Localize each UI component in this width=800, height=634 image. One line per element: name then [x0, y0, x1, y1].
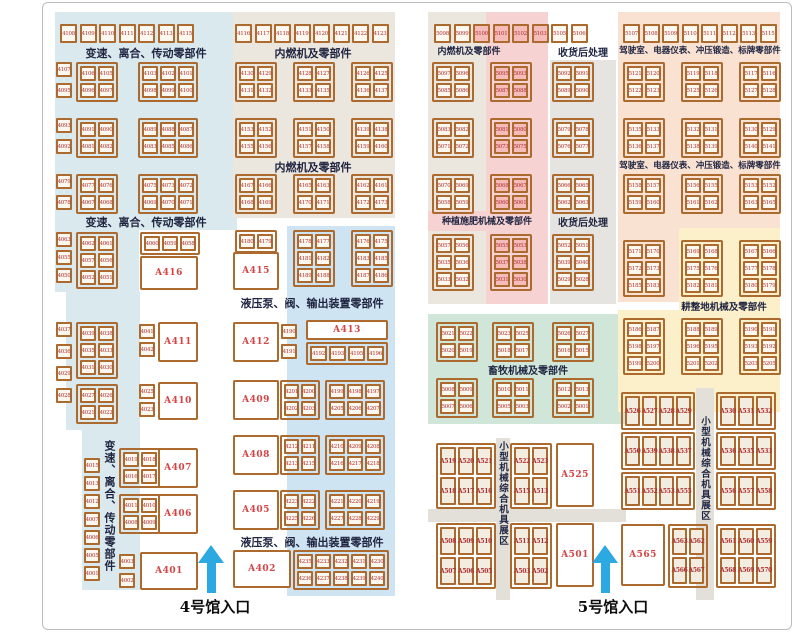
booth-number: 4221	[331, 499, 344, 505]
booth-number: 4131	[241, 88, 254, 94]
booth: A560	[738, 528, 754, 555]
booth-number: 4003	[121, 559, 134, 565]
booth-number: A527	[642, 408, 658, 415]
booth-block: 505250515039504050295028	[552, 234, 594, 291]
booth-number: 5110	[684, 31, 697, 37]
booth-number: A523	[532, 458, 548, 465]
booth: A520	[458, 447, 474, 475]
booth: 4107	[56, 62, 72, 77]
booth: A530	[720, 396, 736, 426]
booth-number: 5106	[573, 31, 586, 37]
booth-label: A408	[242, 450, 270, 460]
booth-number: 5202	[705, 361, 718, 367]
booth-number: 4139	[357, 127, 370, 133]
booth-number: 5036	[456, 260, 469, 266]
booth: A519	[440, 447, 456, 475]
booth-number: 4029	[58, 371, 71, 377]
arrow-head-icon	[198, 545, 224, 563]
booth-number: 4168	[241, 200, 254, 206]
booth-number: 4021	[82, 410, 95, 416]
booth-number: 5071	[438, 144, 451, 150]
booth: 4112	[138, 24, 155, 43]
booth: 4132	[257, 83, 273, 98]
booth: 5157	[645, 178, 661, 193]
booth: 4172	[355, 195, 371, 210]
booth-a407: A407	[158, 448, 198, 488]
booth-block: A550A539A538A537	[621, 432, 695, 470]
section-label: 变速、离合、传动零部件	[55, 45, 237, 61]
booth-number: 4132	[259, 88, 272, 94]
booth-number: 5086	[456, 88, 469, 94]
booth-number: 5062	[558, 200, 571, 206]
booth-number: 5091	[576, 71, 589, 77]
booth-number: 4038	[100, 331, 113, 337]
booth: 4170	[297, 195, 313, 210]
booth: 5140	[743, 139, 759, 154]
booth-number: 5115	[762, 31, 775, 37]
booth-row: 4037403640294028	[56, 322, 72, 403]
section-label: 种植施肥机械及零部件	[424, 214, 550, 227]
booth-block: 505550535037503850315030	[490, 234, 532, 291]
booth-number: 4085	[162, 144, 175, 150]
booth: 5100	[473, 24, 490, 43]
booth-number: 5023	[498, 331, 511, 337]
booth-number: 4165	[299, 183, 312, 189]
booth-number: 4025	[141, 389, 154, 395]
booth-number: 4128	[299, 71, 312, 77]
booth-block: A522A523A515A513	[510, 443, 552, 509]
booth: 5059	[454, 195, 470, 210]
booth-number: 5067	[514, 183, 527, 189]
booth-number: 4137	[375, 88, 388, 94]
booth-number: 4082	[100, 144, 113, 150]
booth-number: 4007	[86, 517, 99, 523]
booth-number: 5079	[558, 127, 571, 133]
booth: 4162	[355, 178, 371, 193]
booth: 4230	[369, 554, 385, 569]
booth-number: 4212	[285, 444, 298, 450]
booth: 4217	[347, 456, 363, 471]
booth-number: A519	[440, 458, 456, 465]
booth-number: A567	[689, 567, 705, 574]
booth-a416: A416	[140, 256, 198, 290]
booth-block: 5121512051225123	[623, 62, 665, 102]
booth-row: 40034002	[119, 554, 135, 588]
booth: 4070	[160, 195, 176, 210]
section-label-vertical: 小型机械综合机具展区	[697, 416, 711, 528]
booth: 5025	[514, 326, 530, 341]
booth-number: A537	[676, 448, 692, 455]
booth-number: 4088	[162, 127, 175, 133]
booth-block: 5097509650855086	[432, 62, 474, 102]
booth-number: 5029	[558, 277, 571, 283]
booth-block: 4235423342324231423042364237423842394240	[293, 550, 389, 590]
booth: 5125	[685, 83, 701, 98]
booth: 5152	[761, 178, 777, 193]
booth-number: 4060	[146, 241, 159, 247]
booth: 4056	[98, 253, 114, 268]
booth: 5109	[662, 24, 679, 43]
booth-number: 4018	[143, 457, 156, 463]
booth: 5026	[556, 326, 572, 341]
booth: 4099	[160, 83, 176, 98]
booth-number: 5193	[745, 344, 758, 350]
booth-row: 40934092	[56, 118, 72, 154]
booth-block: 5119511851255126	[681, 62, 723, 102]
booth-block: 4165416341704171	[293, 174, 335, 214]
booth: A538	[659, 436, 674, 466]
booth-number: 4157	[299, 144, 312, 150]
booth: 5170	[645, 244, 661, 259]
booth: 5036	[454, 255, 470, 270]
booth-number: 5076	[558, 144, 571, 150]
booth: 4138	[373, 122, 389, 137]
booth: 5129	[761, 122, 777, 137]
booth-number: 4136	[357, 88, 370, 94]
booth-number: 4231	[353, 559, 366, 565]
booth-number: 4227	[331, 516, 344, 522]
booth: 4116	[235, 24, 252, 43]
booth: 5002	[556, 399, 572, 414]
booth-number: 4138	[375, 127, 388, 133]
booth-number: 4035	[82, 348, 95, 354]
booth: A533	[756, 436, 772, 466]
booth: 4028	[56, 388, 72, 403]
booth-block: A526A527A528A529	[621, 392, 695, 430]
booth: 5116	[761, 66, 777, 81]
booth: 4173	[373, 195, 389, 210]
booth-number: 5176	[705, 266, 718, 272]
booth: 4027	[80, 388, 96, 403]
booth-number: 4120	[315, 31, 328, 37]
booth-number: 4097	[100, 88, 113, 94]
booth-number: 5205	[763, 361, 776, 367]
booth-number: 5080	[514, 127, 527, 133]
booth: 5052	[556, 238, 572, 253]
booth-number: 5072	[456, 144, 469, 150]
booth-number: 5013	[576, 387, 589, 393]
booth-number: 5188	[687, 327, 700, 333]
booth: A567	[689, 557, 704, 584]
booth-number: 4199	[331, 389, 344, 395]
booth-number: 4225	[285, 516, 298, 522]
booth-number: 4162	[357, 183, 370, 189]
booth: 4190	[281, 324, 297, 339]
booth-row: 40794078	[56, 174, 72, 210]
booth: A512	[532, 527, 548, 555]
booth-number: 4112	[140, 31, 153, 37]
booth-a402: A402	[233, 550, 291, 588]
booth-number: 4235	[299, 559, 312, 565]
booth-number: 4188	[317, 273, 330, 279]
booth: 5195	[703, 339, 719, 354]
booth-number: A509	[458, 538, 474, 545]
booth: 5197	[645, 339, 661, 354]
booth-number: 4058	[182, 241, 195, 247]
booth-block: 5068506750605061	[490, 174, 532, 214]
booth-number: 4105	[100, 71, 113, 77]
booth: 5133	[645, 122, 661, 137]
booth-number: 5019	[460, 348, 473, 354]
booth: A513	[532, 477, 548, 505]
booth: A558	[756, 476, 772, 506]
booth: 4153	[239, 122, 255, 137]
booth: A517	[458, 477, 474, 505]
booth: A521	[476, 447, 492, 475]
booth-number: 4197	[367, 389, 380, 395]
booth: 5168	[703, 244, 719, 259]
booth-number: 5070	[438, 183, 451, 189]
booth-number: 4037	[58, 327, 71, 333]
booth-a401: A401	[140, 552, 198, 590]
booth-number: 4078	[58, 200, 71, 206]
booth: 5205	[761, 356, 777, 371]
booth: 5199	[627, 356, 643, 371]
booth-number: 4119	[296, 31, 309, 37]
booth: 4203	[301, 401, 316, 416]
booth-number: 5119	[687, 71, 700, 77]
booth-number: 5078	[576, 127, 589, 133]
booth: 4121	[333, 24, 350, 43]
section-label: 液压泵、阀、输出装置零部件	[218, 534, 406, 550]
booth-number: 5010	[498, 387, 511, 393]
booth-number: 4118	[276, 31, 289, 37]
booth-block: 518651875198519751995200	[623, 318, 665, 375]
booth-number: 5051	[576, 243, 589, 249]
booth: 4098	[142, 83, 158, 98]
booth-number: 4192	[312, 351, 325, 357]
booth: 4213	[284, 456, 299, 471]
section-label: 驾驶室、电器仪表、冲压锻造、标牌零部件	[616, 44, 784, 56]
booth-number: 5098	[436, 31, 449, 37]
booth-number: 5129	[763, 127, 776, 133]
booth-number: 5022	[460, 331, 473, 337]
booth: 4177	[315, 234, 331, 249]
booth: 4075	[142, 178, 158, 193]
booth: 5037	[494, 255, 510, 270]
booth: 5118	[703, 66, 719, 81]
booth-row: 4015401340124007400640054001	[84, 458, 100, 581]
booth: 4109	[80, 24, 97, 43]
booth-a408: A408	[233, 435, 279, 475]
booth-a525: A525	[556, 443, 594, 507]
booth: 5112	[721, 24, 738, 43]
booth: 5188	[685, 322, 701, 337]
booth: 4175	[373, 234, 389, 249]
booth-number: 5025	[516, 331, 529, 337]
booth: 5159	[627, 195, 643, 210]
booth-number: 5027	[576, 331, 589, 337]
booth: 4021	[80, 405, 96, 420]
booth: 4228	[347, 511, 363, 526]
booth-number: 5155	[705, 183, 718, 189]
booth: 4017	[141, 469, 157, 484]
booth-block: 5021502250205019	[436, 322, 478, 362]
booth: 4076	[98, 178, 114, 193]
booth-number: 4200	[302, 389, 315, 395]
booth-number: 5170	[647, 249, 660, 255]
booth-number: 4173	[375, 200, 388, 206]
booth: A566	[672, 557, 687, 584]
booth-block: 421042094208421642174218	[325, 435, 385, 475]
booth-a565: A565	[621, 524, 665, 586]
booth: 5092	[556, 66, 572, 81]
section-label: 内燃机及零部件	[233, 159, 393, 175]
booth-number: 5105	[553, 31, 566, 37]
booth: 4031	[80, 360, 96, 375]
booth-number: 4239	[353, 576, 366, 582]
booth-number: 5172	[629, 266, 642, 272]
booth-block: 4126412541364137	[351, 62, 393, 102]
booth: 4233	[315, 554, 331, 569]
booth-number: 4205	[331, 406, 344, 412]
booth-number: 4011	[125, 503, 138, 509]
booth-number: 4015	[86, 463, 99, 469]
section-label: 变速、离合、传动零部件	[55, 214, 237, 230]
booth-block: 5066506550625063	[552, 174, 594, 214]
booth: 5070	[436, 178, 452, 193]
zone-hall5-small-mach-gray-h	[428, 509, 626, 522]
booth-number: 4057	[82, 258, 95, 264]
booth-number: A508	[440, 538, 456, 545]
booth-number: 4151	[299, 127, 312, 133]
booth-number: 5065	[576, 183, 589, 189]
booth: 5096	[454, 66, 470, 81]
booth-number: 4079	[58, 179, 71, 185]
booth-number: 4108	[62, 31, 75, 37]
booth-number: 5017	[516, 348, 529, 354]
booth-block: 407540734072406940704071	[138, 174, 198, 214]
booth: 5083	[436, 122, 452, 137]
booth: 4085	[160, 139, 176, 154]
booth: 4057	[80, 253, 96, 268]
booth: 4030	[98, 360, 114, 375]
booth-number: 4019	[125, 457, 138, 463]
booth-number: 5058	[438, 200, 451, 206]
booth-block: 4151415041574158	[293, 118, 335, 158]
booth: 5136	[627, 139, 643, 154]
booth: 5099	[454, 24, 471, 43]
booth-number: 4103	[144, 71, 157, 77]
booth-label: A402	[248, 564, 276, 574]
booth: 4180	[239, 234, 255, 249]
booth: 5202	[703, 356, 719, 371]
booth: A511	[514, 527, 530, 555]
booth-number: A511	[514, 538, 530, 545]
booth-number: 4216	[331, 461, 344, 467]
booth: 4016	[123, 469, 139, 484]
booth-number: 5011	[516, 387, 529, 393]
booth: 4205	[329, 401, 345, 416]
booth-block: 4153415241554156	[235, 118, 277, 158]
booth-number: 4233	[317, 559, 330, 565]
booth-number: 4202	[285, 406, 298, 412]
booth: 4105	[98, 66, 114, 81]
booth-block: A536A535A533	[716, 432, 776, 470]
booth: 4042	[139, 342, 155, 357]
booth-block: 516951685175517651825181	[681, 240, 723, 297]
booth: 5006	[458, 399, 474, 414]
booth: 4239	[351, 571, 367, 586]
booth-number: 5109	[664, 31, 677, 37]
booth-number: 5001	[576, 404, 589, 410]
booth: 4115	[177, 24, 194, 43]
booth: 4156	[257, 139, 273, 154]
booth-number: 4116	[237, 31, 250, 37]
booth: 5033	[436, 272, 452, 287]
booth-number: A507	[440, 568, 456, 575]
booth: 5089	[556, 83, 572, 98]
booth: 4083	[142, 139, 158, 154]
booth-number: 4208	[367, 444, 380, 450]
booth: 5029	[556, 272, 572, 287]
booth: 4220	[347, 494, 363, 509]
booth: 4159	[355, 139, 371, 154]
section-label: 内燃机及零部件	[424, 44, 514, 57]
booth-block: 505750565035503650335032	[432, 234, 474, 291]
booth: 5093	[512, 66, 528, 81]
booth-number: A552	[642, 488, 658, 495]
booth: 5166	[761, 244, 777, 259]
booth: 5135	[627, 122, 643, 137]
booth: A507	[440, 557, 456, 585]
booth: 4062	[80, 236, 96, 251]
booth-number: 5103	[534, 31, 547, 37]
booth: 4187	[355, 268, 371, 283]
booth: 5131	[703, 122, 719, 137]
booth-row: 41904191	[281, 324, 297, 359]
booth-number: 4211	[302, 444, 315, 450]
booth-number: 5203	[745, 361, 758, 367]
booth: 4026	[98, 388, 114, 403]
booth-number: A518	[440, 488, 456, 495]
booth-number: 5099	[456, 31, 469, 37]
booth-block: 5153515251635165	[739, 174, 781, 214]
booth: 5018	[496, 343, 512, 358]
booth-block: 403940384035403340314030	[76, 322, 118, 379]
booth-number: 4183	[357, 256, 370, 262]
booth-number: 4075	[144, 183, 157, 189]
booth: 5015	[574, 343, 590, 358]
booth-number: 5118	[705, 71, 718, 77]
booth: 5027	[574, 326, 590, 341]
booth-number: 5009	[460, 387, 473, 393]
booth-number: 4093	[58, 123, 71, 129]
booth-number: A520	[458, 458, 474, 465]
booth: 4152	[257, 122, 273, 137]
booth-block: 5079507850765077	[552, 118, 594, 158]
booth: 5022	[458, 326, 474, 341]
section-label: 收货后处理	[546, 44, 620, 59]
booth-number: 4031	[82, 365, 95, 371]
booth: A526	[625, 396, 640, 426]
booth: 5105	[551, 24, 568, 43]
booth: 5121	[627, 66, 643, 81]
booth: 5137	[645, 139, 661, 154]
booth: A557	[738, 476, 754, 506]
booth-number: 4123	[374, 31, 387, 37]
booth-number: 4163	[317, 183, 330, 189]
booth-number: A530	[720, 408, 736, 415]
booth: 4182	[315, 251, 331, 266]
booth-number: 5053	[514, 243, 527, 249]
booth-number: 5089	[558, 88, 571, 94]
booth-number: 4077	[82, 183, 95, 189]
booth: A563	[672, 528, 687, 555]
booth-number: 5153	[745, 183, 758, 189]
booth-number: 4240	[371, 576, 384, 582]
booth-block: 408940884087408340854086	[138, 118, 198, 158]
